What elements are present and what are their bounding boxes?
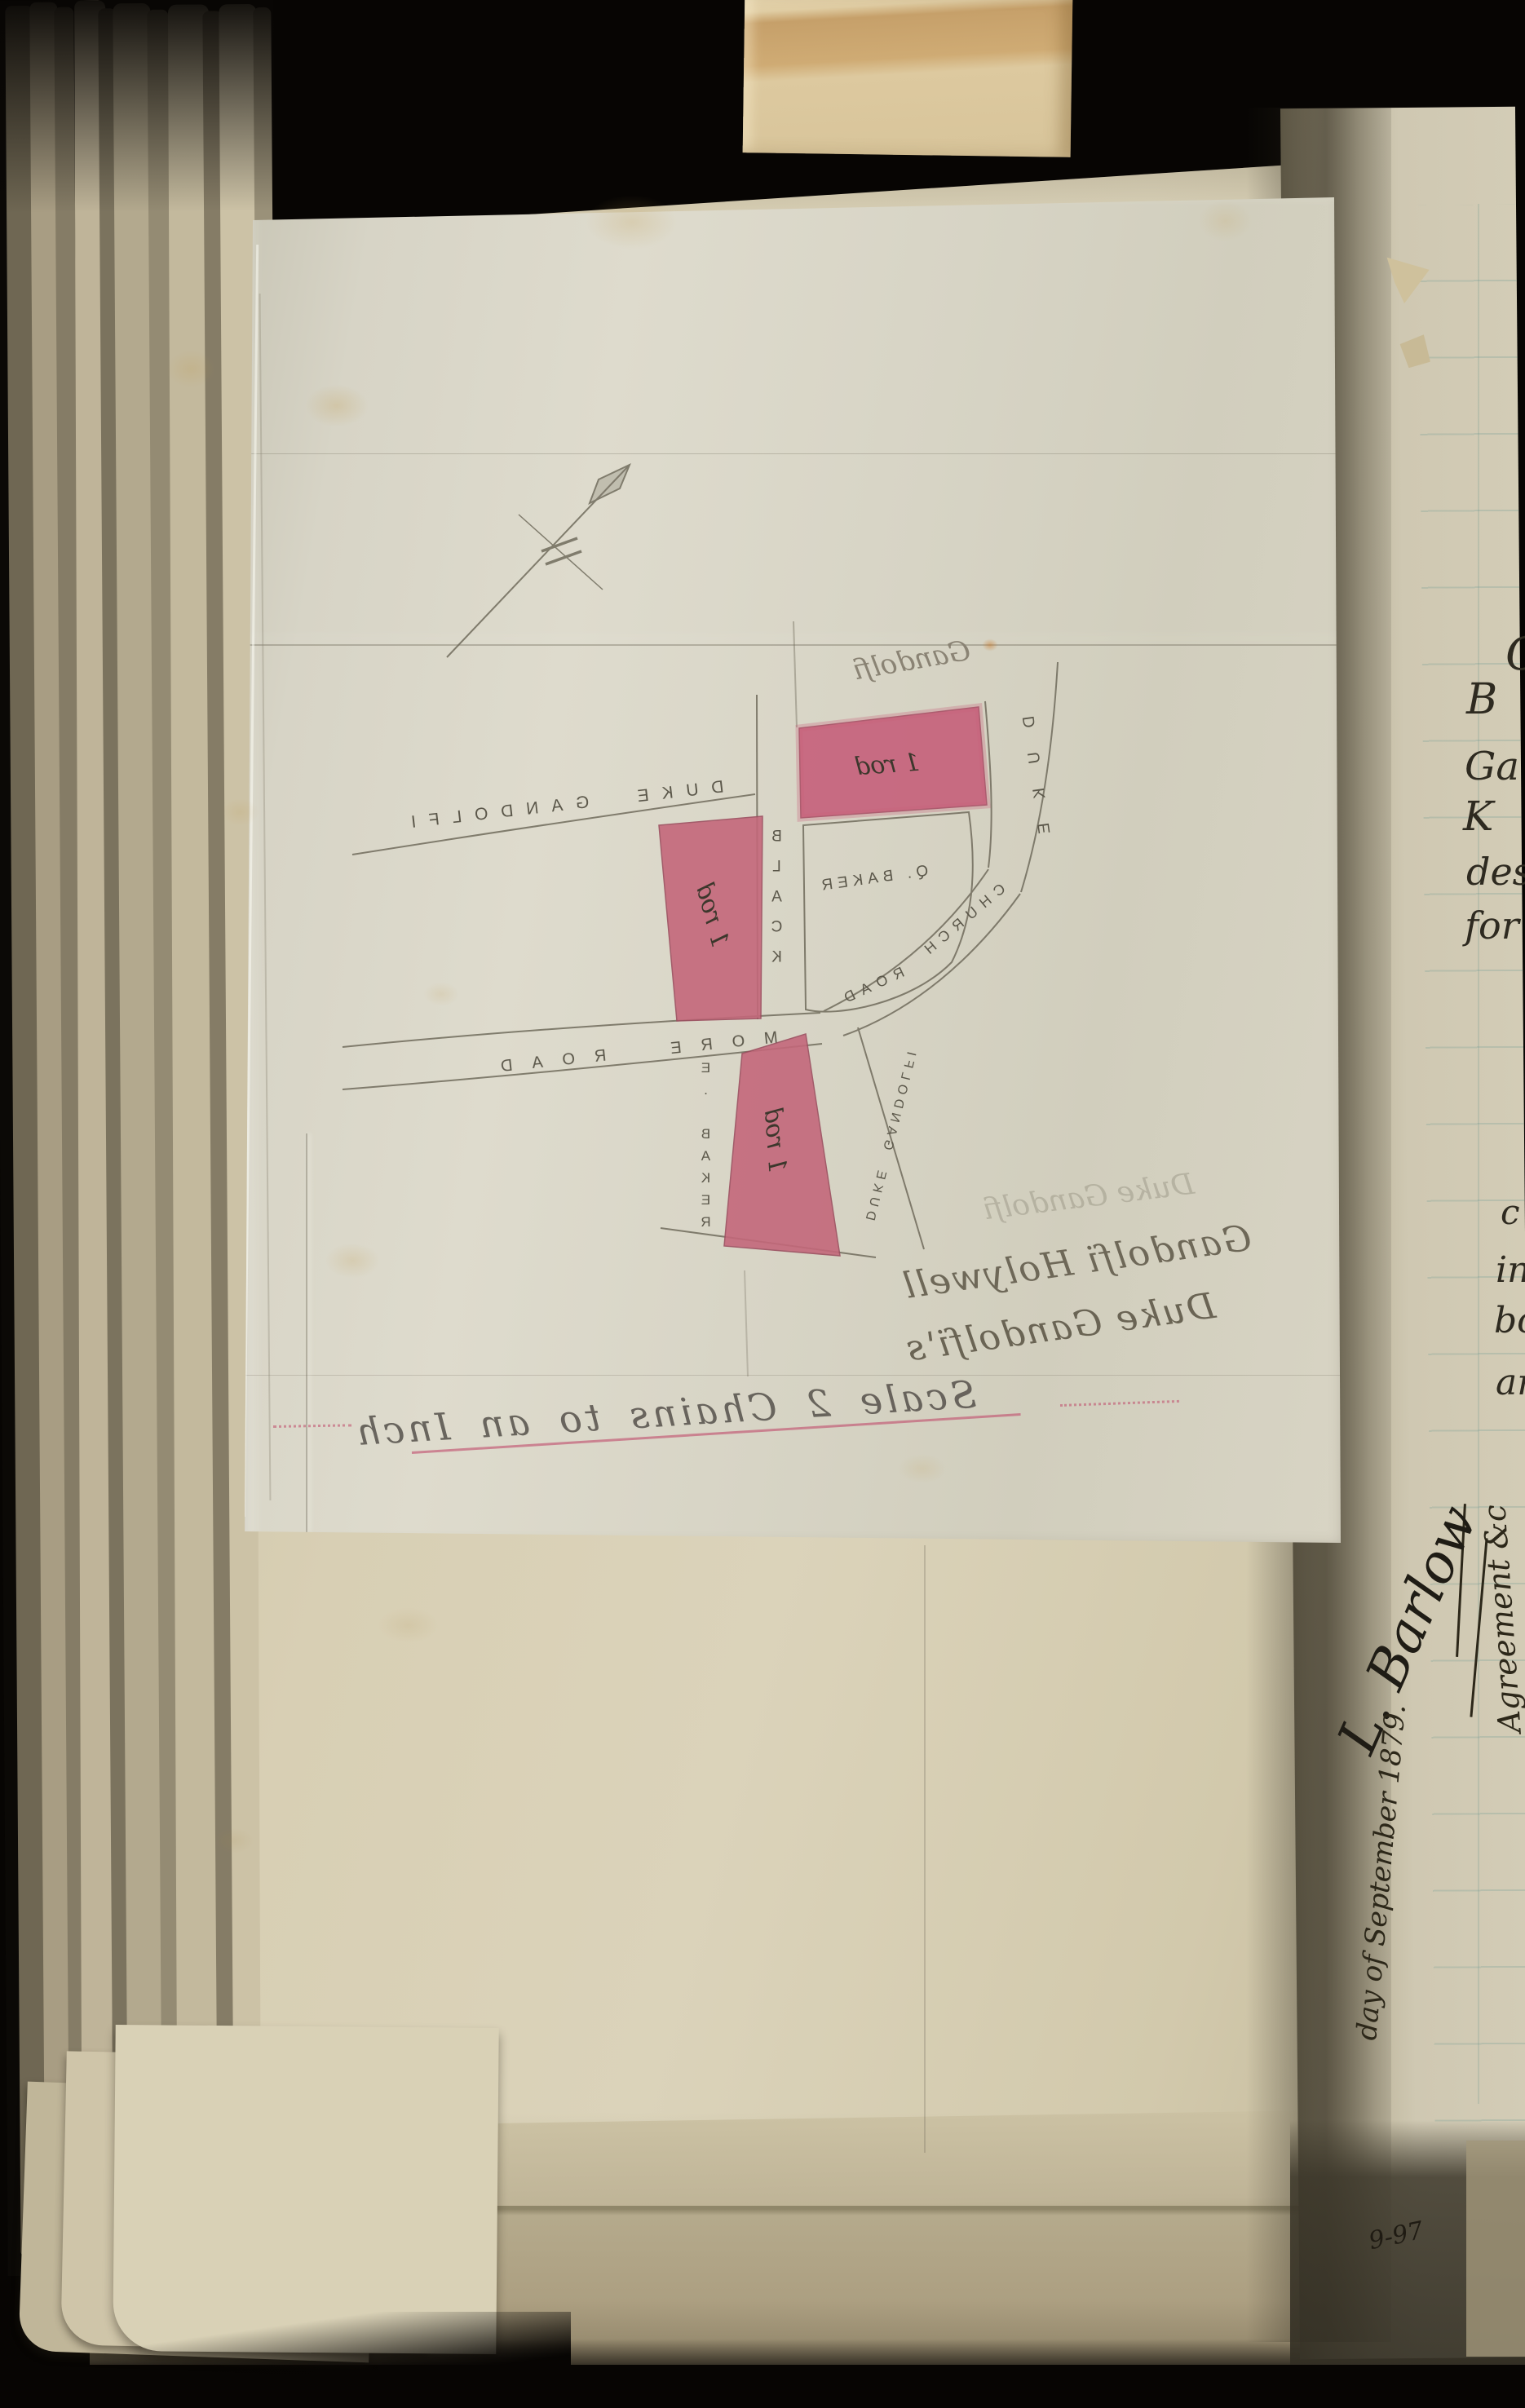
stack-shadow (0, 0, 275, 213)
corner-black-wedge (0, 2312, 571, 2408)
stacked-corners (0, 1990, 571, 2408)
margin-fragment: an (1496, 1362, 1525, 1403)
scanned-deed-book-photo: DUKE GANDOLFI Q. BAKER BLACK MORE ROAD C… (0, 0, 1525, 2408)
north-arrow-cross (519, 515, 603, 590)
margin-fragment: in (1496, 1249, 1525, 1291)
margin-fragment: B (1466, 675, 1497, 724)
right-bottom-page-edge (1466, 2141, 1525, 2357)
street-label-black: BLACK (768, 828, 786, 979)
margin-fragment: des (1466, 850, 1525, 894)
margin-fragment: Ga (1465, 744, 1519, 789)
margin-fragment: C (1505, 628, 1525, 681)
parcel-area-bottom: 1 rod (758, 1107, 792, 1173)
map-drawing (243, 196, 1342, 1553)
road-black-stub (793, 621, 797, 727)
road-church-lower (843, 894, 1020, 1036)
margin-fragment: c (1501, 1192, 1520, 1232)
margin-fragment: bo (1494, 1300, 1525, 1341)
margin-fragment: for (1465, 904, 1519, 948)
margin-fragment: K (1463, 793, 1493, 840)
faint-line (745, 1270, 748, 1376)
parcel-area-top: 1 rod (854, 749, 921, 782)
page-corner (113, 2025, 498, 2354)
owner-label-e-baker: E. BAKER (698, 1060, 714, 1236)
bookmark-tape (743, 0, 1073, 157)
north-arrow-head (590, 465, 630, 503)
margin-rule (1478, 204, 1479, 2104)
under-sheet-edge (924, 1545, 926, 2153)
north-arrow-bar (546, 551, 581, 564)
